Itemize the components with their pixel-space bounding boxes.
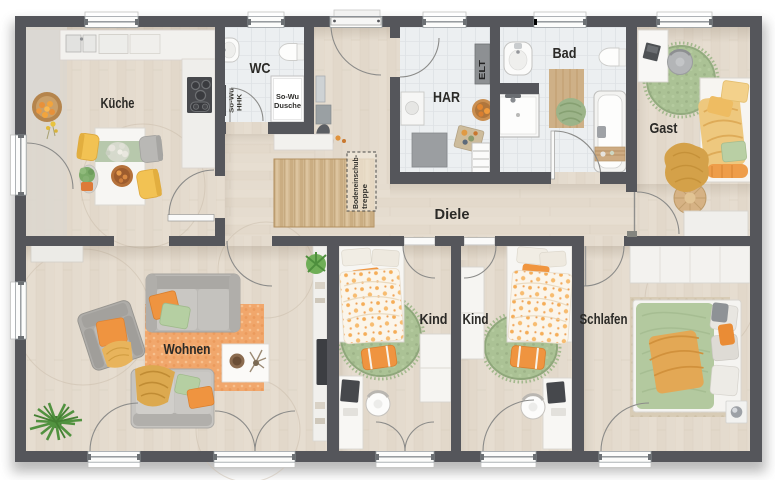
svg-text:Wohnen: Wohnen	[164, 341, 211, 358]
svg-text:treppe: treppe	[362, 184, 369, 209]
svg-text:HAR: HAR	[433, 89, 460, 106]
svg-text:Gast: Gast	[650, 120, 678, 137]
svg-text:Schlafen: Schlafen	[580, 311, 628, 328]
svg-text:Diele: Diele	[435, 206, 470, 223]
svg-text:So-Wu: So-Wu	[276, 92, 299, 101]
svg-text:Dusche: Dusche	[274, 101, 301, 110]
svg-text:ELT: ELT	[477, 59, 487, 80]
svg-text:Bodeneinschub-: Bodeneinschub-	[353, 154, 360, 209]
svg-text:Küche: Küche	[101, 95, 135, 112]
svg-text:WC: WC	[250, 60, 271, 77]
svg-text:HHK: HHK	[237, 94, 244, 111]
svg-text:Kind: Kind	[420, 311, 448, 328]
svg-text:Bad: Bad	[553, 45, 577, 62]
svg-text:Kind: Kind	[463, 311, 489, 328]
